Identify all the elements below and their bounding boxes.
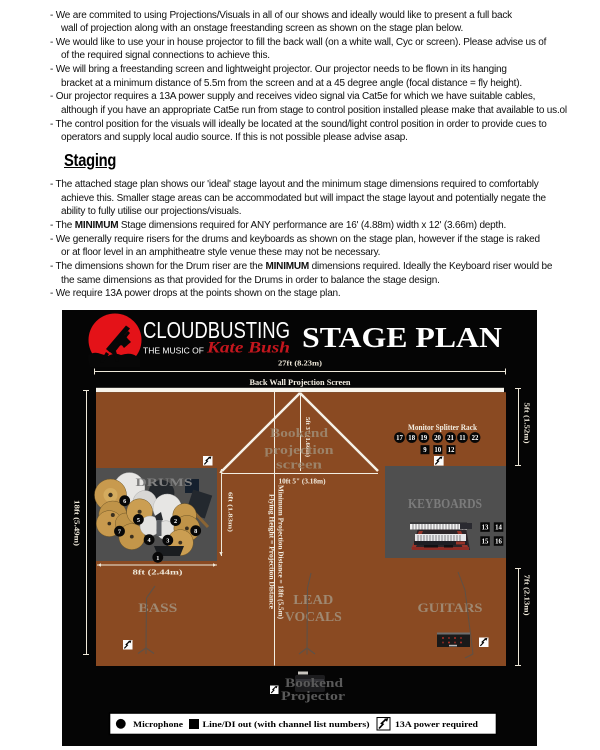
- svg-text:Projector: Projector: [281, 689, 346, 703]
- svg-text:7ft (2.13m): 7ft (2.13m): [523, 575, 531, 617]
- svg-text:10: 10: [434, 447, 441, 454]
- svg-text:5: 5: [137, 517, 140, 524]
- svg-text:13A power required: 13A power required: [395, 719, 478, 729]
- svg-text:10ft 5" (3.18m): 10ft 5" (3.18m): [279, 478, 327, 486]
- svg-text:9: 9: [423, 447, 427, 454]
- svg-text:21: 21: [447, 435, 454, 442]
- svg-text:27ft (8.23m): 27ft (8.23m): [278, 359, 323, 368]
- svg-text:Microphone: Microphone: [133, 719, 183, 729]
- svg-text:1: 1: [156, 555, 159, 562]
- svg-text:7: 7: [118, 529, 121, 536]
- svg-text:11: 11: [459, 435, 466, 442]
- svg-text:KEYBOARDS: KEYBOARDS: [408, 496, 482, 511]
- svg-text:18: 18: [408, 435, 415, 442]
- svg-text:12: 12: [448, 447, 455, 454]
- svg-text:GUITARS: GUITARS: [418, 600, 483, 615]
- svg-text:DRUMS: DRUMS: [136, 475, 193, 489]
- svg-text:BASS: BASS: [138, 600, 177, 615]
- svg-text:projection: projection: [265, 443, 334, 457]
- svg-text:5ft (1.52m): 5ft (1.52m): [523, 403, 531, 445]
- svg-text:Line/DI out (with channel list: Line/DI out (with channel list numbers): [203, 719, 370, 729]
- svg-text:15: 15: [482, 539, 489, 546]
- svg-text:LEAD: LEAD: [293, 593, 333, 608]
- svg-text:screen: screen: [276, 458, 322, 472]
- svg-text:18ft (5.49m): 18ft (5.49m): [72, 500, 81, 547]
- svg-text:VOCALS: VOCALS: [285, 610, 342, 625]
- svg-text:Bookend: Bookend: [285, 676, 343, 690]
- svg-text:THE MUSIC OF: THE MUSIC OF: [143, 346, 204, 356]
- svg-text:Back Wall Projection Screen: Back Wall Projection Screen: [250, 378, 352, 387]
- svg-text:Kate Bush: Kate Bush: [206, 340, 290, 357]
- svg-text:6: 6: [123, 498, 126, 505]
- svg-text:Bookend: Bookend: [270, 426, 328, 440]
- svg-text:8: 8: [194, 528, 197, 535]
- svg-text:14: 14: [495, 525, 502, 532]
- svg-text:16: 16: [495, 539, 502, 546]
- svg-text:Minimum Projection Distance =: Minimum Projection Distance = 18ft (5.5m…: [277, 485, 285, 620]
- svg-text:19: 19: [420, 435, 427, 442]
- svg-text:8ft (2.44m): 8ft (2.44m): [133, 570, 183, 577]
- svg-text:STAGE PLAN: STAGE PLAN: [302, 323, 502, 354]
- svg-text:3: 3: [166, 538, 169, 545]
- svg-text:13: 13: [482, 525, 489, 532]
- svg-text:22: 22: [472, 435, 479, 442]
- svg-text:17: 17: [396, 435, 403, 442]
- svg-text:20: 20: [434, 435, 441, 442]
- svg-text:2: 2: [174, 518, 177, 525]
- svg-text:Monitor Splitter Rack: Monitor Splitter Rack: [408, 423, 477, 432]
- svg-text:Flying Height = Projection Dis: Flying Height = Projection Distance: [268, 494, 276, 609]
- svg-text:6ft (1.83m): 6ft (1.83m): [227, 492, 234, 532]
